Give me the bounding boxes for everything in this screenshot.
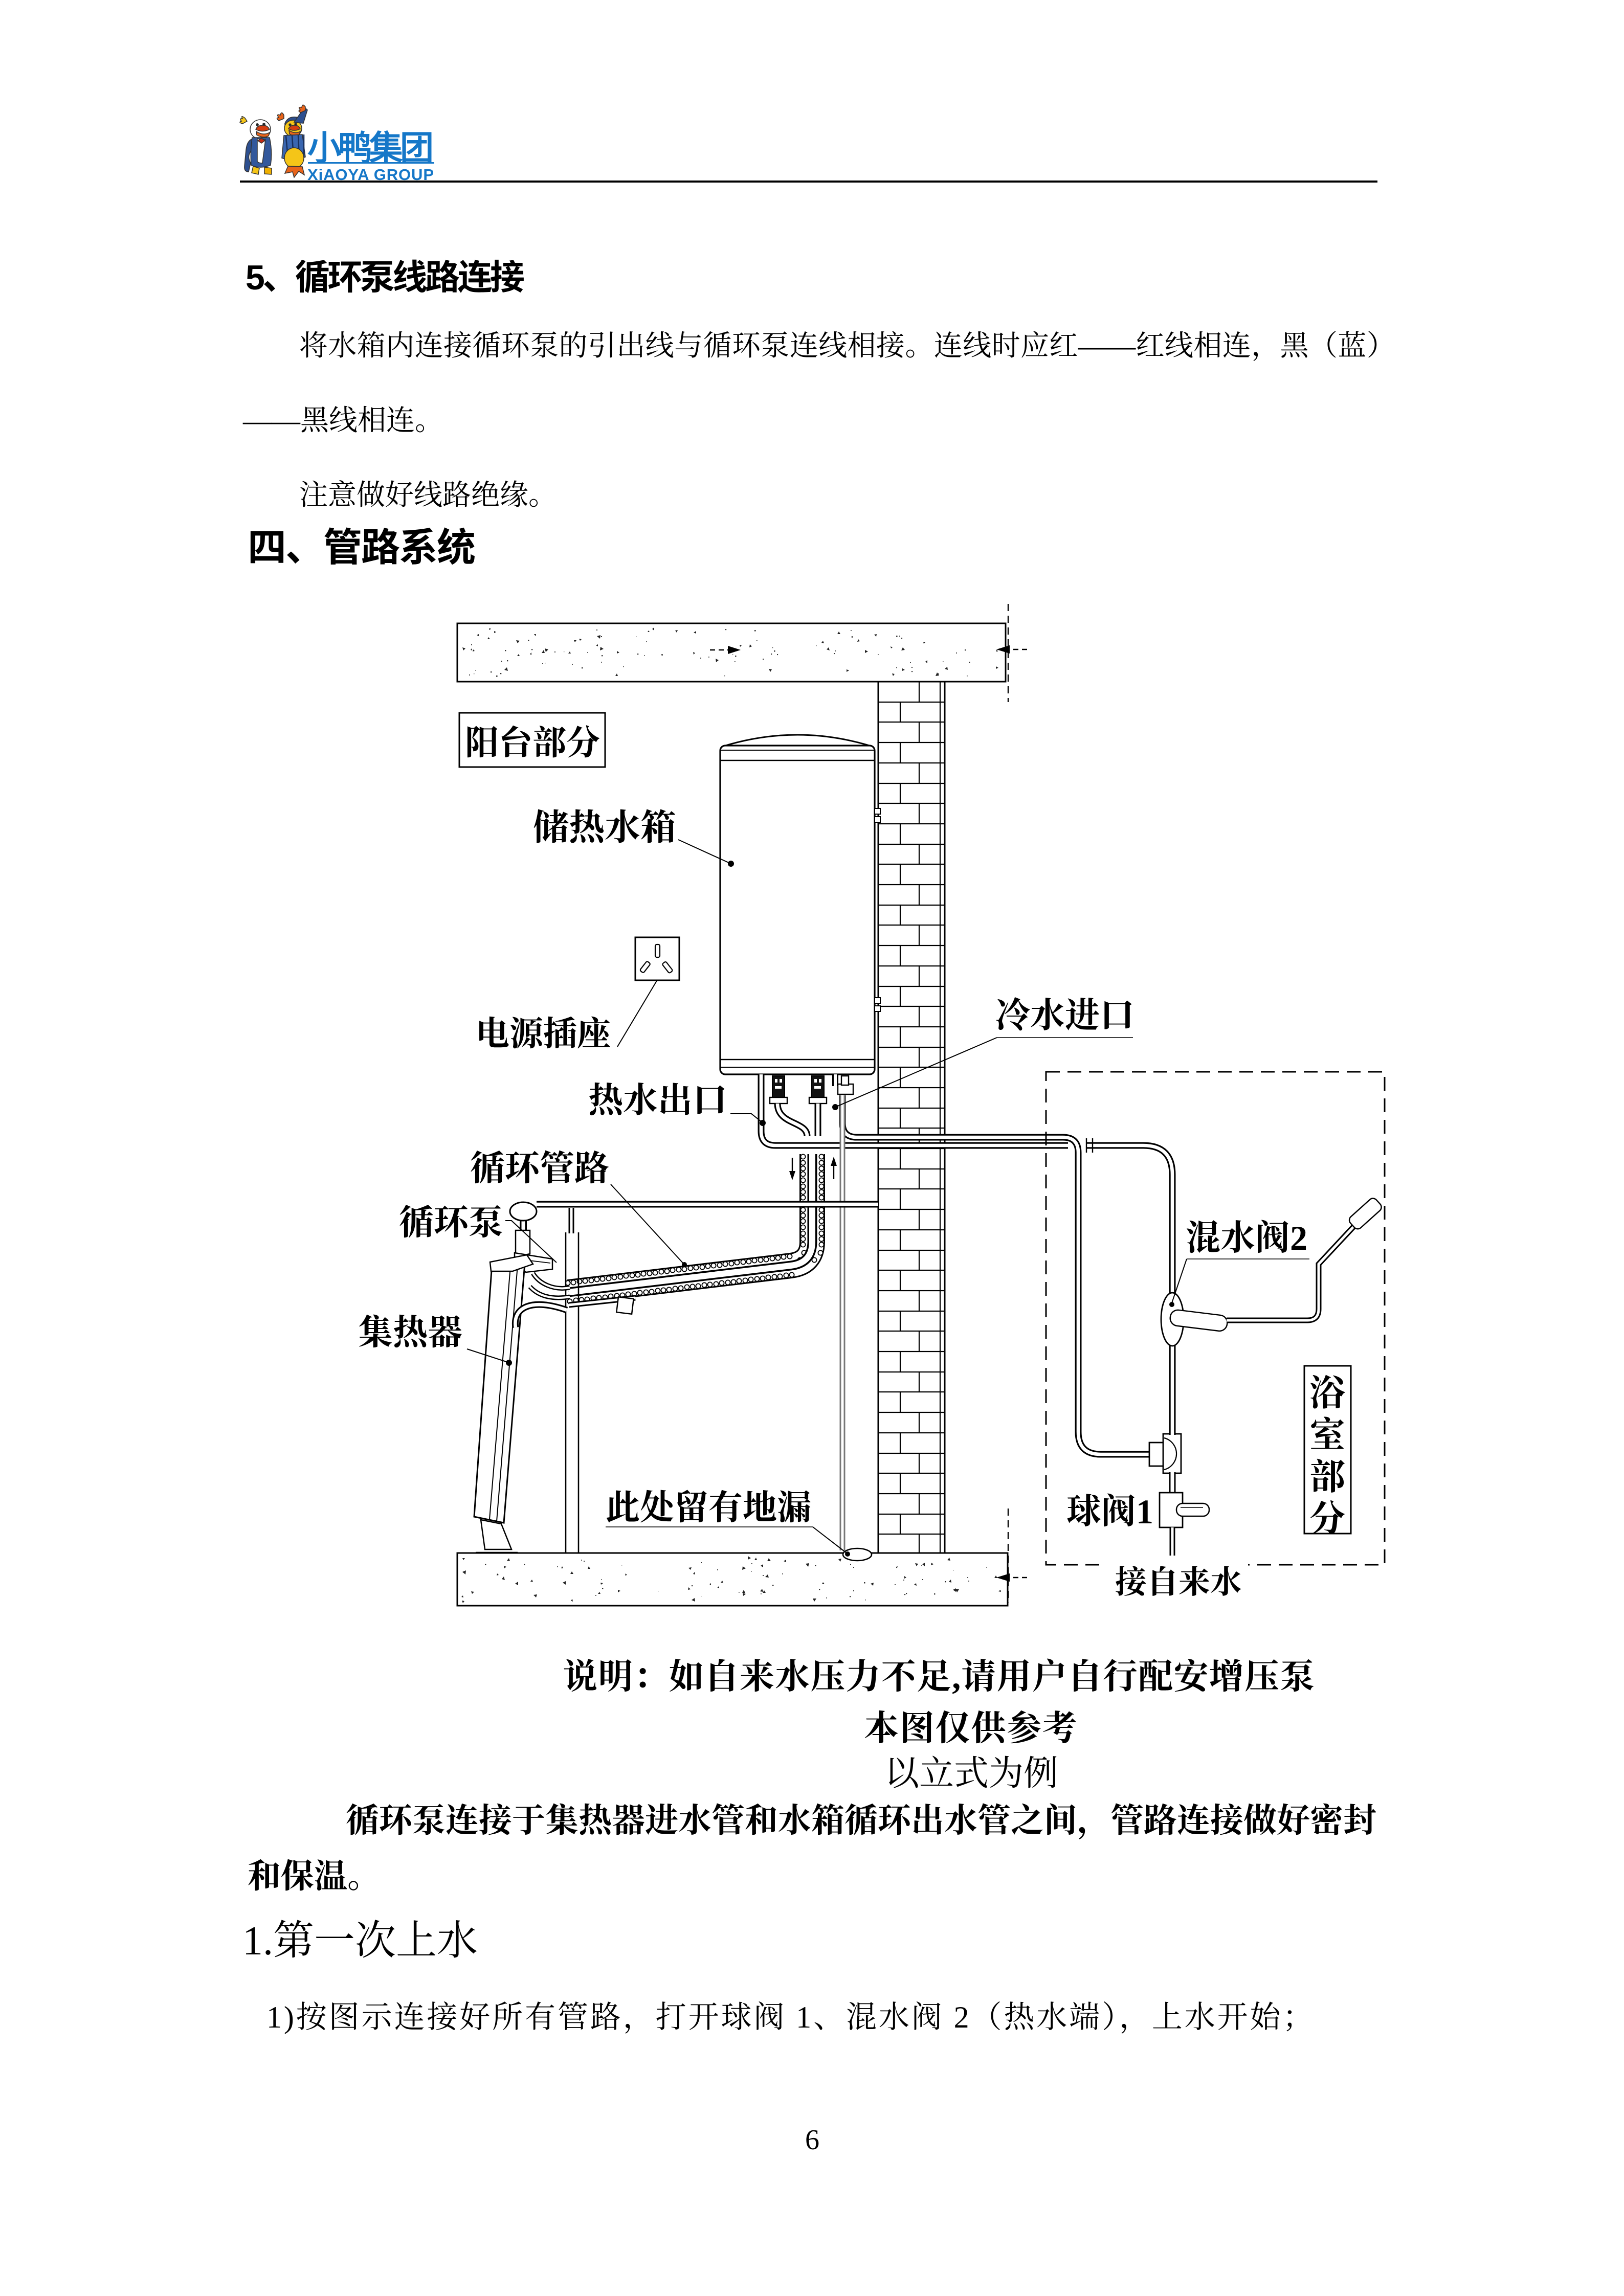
svg-text:部: 部 xyxy=(1309,1458,1345,1497)
svg-text:循环管路: 循环管路 xyxy=(470,1149,609,1188)
svg-text:阳台部分: 阳台部分 xyxy=(465,725,600,762)
svg-text:接自来水: 接自来水 xyxy=(1115,1565,1242,1600)
svg-text:集热器: 集热器 xyxy=(358,1313,462,1352)
svg-text:电源插座: 电源插座 xyxy=(476,1016,612,1053)
svg-text:此处留有地漏: 此处留有地漏 xyxy=(606,1489,811,1527)
svg-text:浴: 浴 xyxy=(1309,1374,1347,1413)
svg-text:分: 分 xyxy=(1309,1500,1345,1539)
svg-text:循环泵: 循环泵 xyxy=(399,1203,503,1242)
svg-text:冷水进口: 冷水进口 xyxy=(995,996,1134,1035)
svg-text:热水出口: 热水出口 xyxy=(588,1081,727,1120)
svg-text:室: 室 xyxy=(1309,1416,1345,1455)
svg-text:储热水箱: 储热水箱 xyxy=(533,808,676,848)
svg-text:球阀1: 球阀1 xyxy=(1066,1492,1153,1531)
svg-text:混水阀2: 混水阀2 xyxy=(1186,1219,1307,1257)
